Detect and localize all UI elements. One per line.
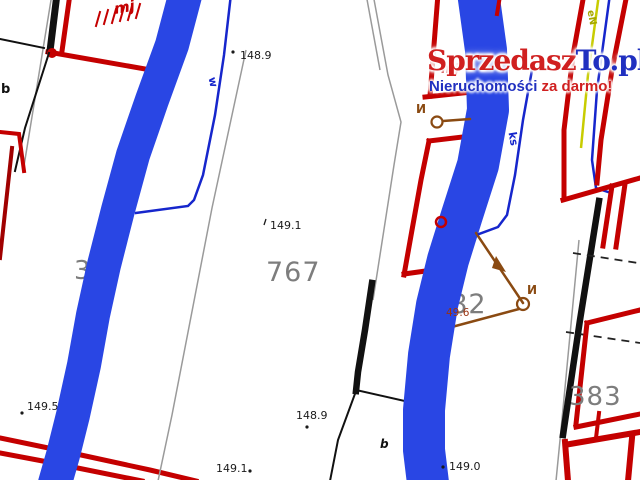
map-canvas: 3 382 149.5 — [0, 0, 640, 480]
building-outline — [616, 184, 625, 247]
parcel-line — [373, 0, 401, 300]
elevation-tick — [264, 219, 266, 225]
dashed-boundary — [573, 253, 638, 263]
elevation-dot — [441, 465, 444, 468]
pole-symbol-label: И — [416, 102, 426, 116]
boundary-thick-line — [50, 0, 57, 51]
building-outline — [404, 141, 429, 275]
fence-line — [628, 438, 632, 480]
pole-symbol-label: И — [527, 283, 537, 297]
building-outline — [603, 186, 612, 246]
elevation-label-top: 148.9 — [240, 49, 272, 62]
land-use-letter-b: b — [380, 437, 389, 451]
elevation-dot — [20, 411, 23, 414]
fence-line — [565, 442, 568, 480]
elevation-dot — [231, 50, 234, 53]
fence-line — [0, 148, 12, 258]
cadastral-map: 3 382 149.5 — [0, 0, 640, 480]
mj-building-label: mj — [441, 62, 460, 77]
boundary-thick-line — [356, 283, 372, 391]
parcel-boundary — [330, 391, 356, 480]
sewer-line-label: ks — [506, 131, 521, 147]
river-left — [55, 0, 186, 480]
utility-pole-symbol — [432, 117, 443, 128]
elevation-dot — [248, 469, 251, 472]
elevation-label-bottom-center: 148.9 — [296, 409, 328, 422]
elevation-label-bottom: 149.1 — [216, 462, 248, 475]
power-line-label: eN — [585, 9, 598, 26]
elevation-label-center: 149.1 — [270, 219, 302, 232]
parcel-number-383: 383 — [569, 382, 622, 412]
building-outline — [597, 0, 627, 183]
land-use-letter-b: b — [1, 82, 10, 97]
elevation-label-bottom-left: 149.5 — [27, 400, 59, 413]
mj-building-label: mj — [113, 0, 137, 18]
elevation-label-bottom-right: 149.0 — [449, 460, 481, 473]
parcel-line — [158, 50, 246, 480]
building-outline-383 — [587, 310, 640, 323]
building-outline — [430, 0, 438, 96]
building-outline — [563, 178, 640, 200]
parcel-number-767: 767 — [266, 257, 321, 288]
elevation-label-near-382: 49.6 — [446, 307, 470, 319]
boundary-red-line — [62, 0, 70, 51]
parcel-boundary — [0, 39, 44, 48]
building-outline-383 — [576, 414, 640, 427]
parcel-line — [366, 0, 380, 70]
elevation-dot — [305, 425, 308, 428]
building-tick — [596, 413, 599, 438]
building-outline — [564, 0, 584, 199]
